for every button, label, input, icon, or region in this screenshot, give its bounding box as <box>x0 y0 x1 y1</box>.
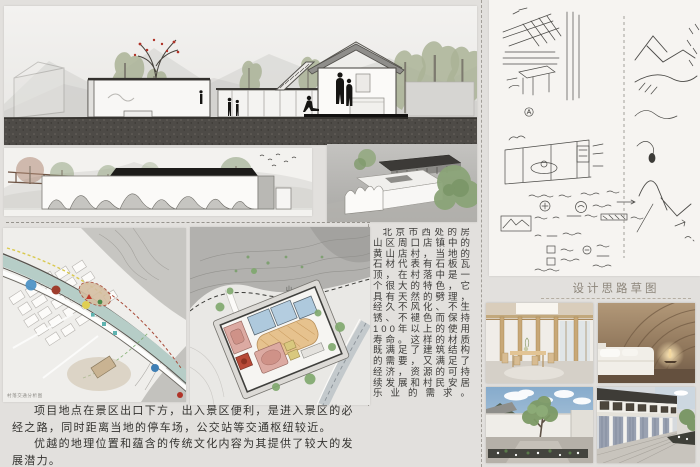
village-traffic-map-panel: 村落交通分析图 <box>3 228 186 402</box>
axonometric-panel <box>327 144 477 222</box>
main-vertical-dashed-divider <box>481 0 482 467</box>
section-drawing-panel <box>4 6 477 145</box>
presentation-board: 村落交通分析图 山 体 土坡 <box>0 0 700 467</box>
wall-elevation-panel <box>4 148 312 216</box>
stone-material-paragraph: 北京市西处的房山区周口店镇中的黄山店村，当地的石材代表有石板瓦顶，在村落中是一个… <box>373 228 473 422</box>
render-courtyard <box>486 387 593 463</box>
horizontal-dashed-divider <box>6 222 370 223</box>
village-traffic-map: 村落交通分析图 <box>3 228 186 402</box>
master-plan-drawing: 山 体 土坡 <box>190 227 370 405</box>
design-sketches-panel <box>489 0 700 276</box>
axonometric-rendering <box>327 144 477 222</box>
render-veranda-walkway <box>597 387 695 463</box>
location-paragraph-1: 项目地点在景区出口下方，出入景区便利，是进入景区的必经之路，同时距离当地的停车场… <box>12 403 364 436</box>
master-plan-panel: 山 体 土坡 <box>190 227 370 405</box>
wall-elevation-drawing <box>4 148 312 216</box>
location-paragraph-2: 优越的地理位置和蕴含的传统文化内容为其提供了较大的发展潜力。 <box>12 436 364 467</box>
render-interior-dining <box>486 303 593 383</box>
section-drawing <box>4 6 477 145</box>
map-caption: 村落交通分析图 <box>7 392 43 399</box>
location-text-block: 项目地点在景区出口下方，出入景区便利，是进入景区的必经之路，同时距离当地的停车场… <box>12 403 364 467</box>
render-bedroom <box>598 303 695 383</box>
sketch-section-caption: 设计思路草图 <box>541 280 691 299</box>
design-sketches <box>489 0 700 276</box>
